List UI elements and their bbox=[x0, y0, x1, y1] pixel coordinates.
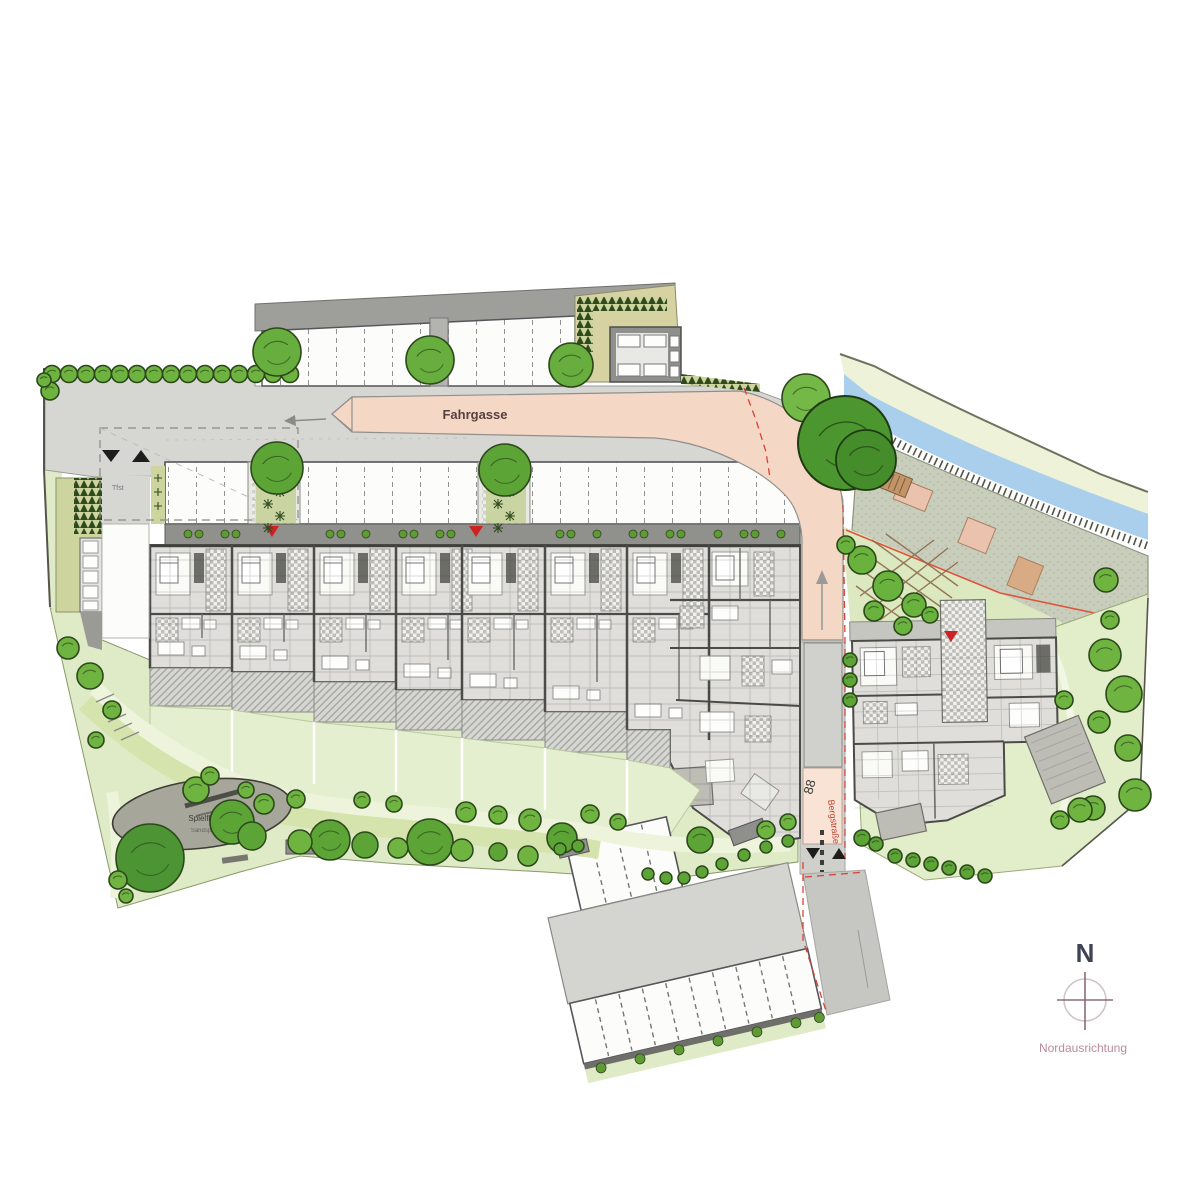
svg-text:Tfst: Tfst bbox=[112, 485, 124, 492]
svg-text:N: N bbox=[1076, 938, 1095, 968]
svg-text:Fahrgasse: Fahrgasse bbox=[442, 407, 507, 422]
svg-text:Nordausrichtung: Nordausrichtung bbox=[1039, 1041, 1127, 1055]
